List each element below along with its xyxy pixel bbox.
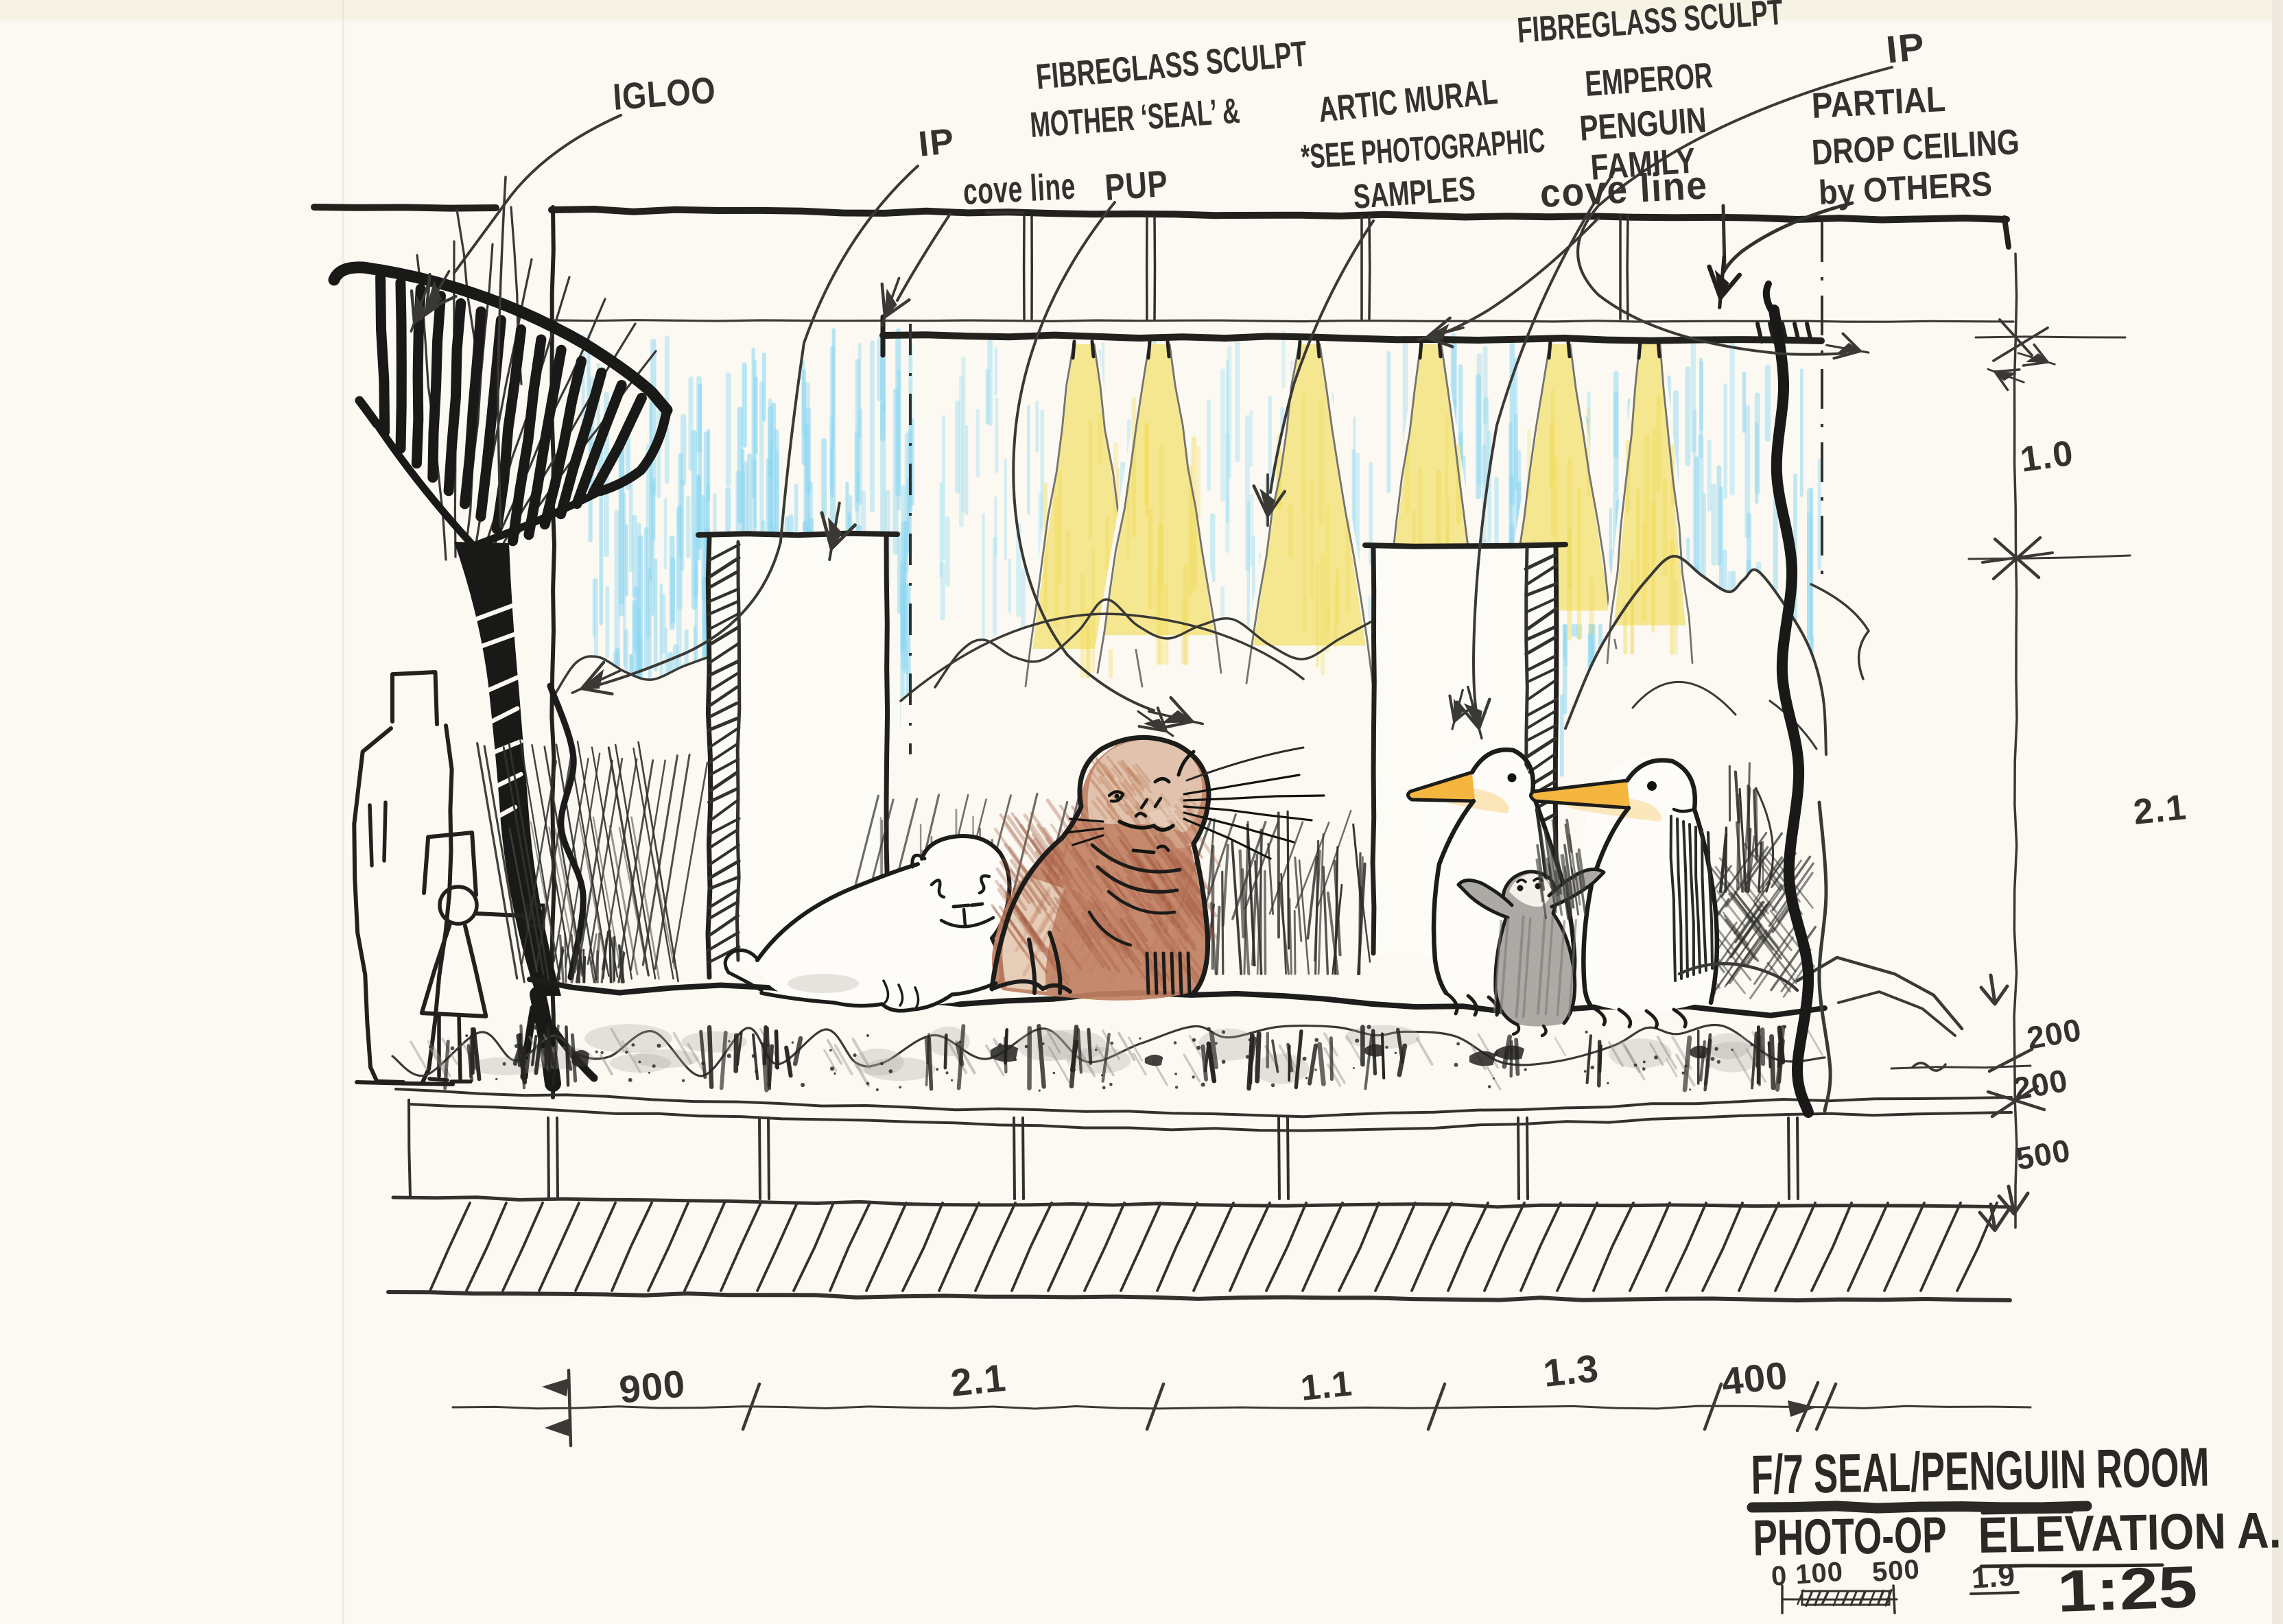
svg-text:2.1: 2.1 — [2131, 787, 2189, 833]
svg-text:400: 400 — [1720, 1353, 1790, 1403]
svg-text:500: 500 — [1871, 1554, 1921, 1588]
svg-text:1.0: 1.0 — [2018, 433, 2077, 480]
svg-text:PUP: PUP — [1104, 163, 1170, 208]
svg-text:PARTIAL: PARTIAL — [1811, 80, 1947, 126]
svg-text:IP: IP — [1884, 24, 1928, 71]
svg-text:IGLOO: IGLOO — [612, 70, 718, 118]
svg-text:cove line: cove line — [962, 165, 1076, 213]
svg-text:1:25: 1:25 — [2056, 1554, 2198, 1624]
svg-text:F/7 SEAL/PENGUIN ROOM: F/7 SEAL/PENGUIN ROOM — [1751, 1436, 2210, 1505]
svg-text:2.1: 2.1 — [949, 1356, 1008, 1405]
svg-text:IP: IP — [916, 121, 957, 165]
svg-text:1.9: 1.9 — [1970, 1559, 2016, 1595]
svg-text:1.1: 1.1 — [1299, 1363, 1354, 1409]
svg-text:1.3: 1.3 — [1541, 1346, 1601, 1395]
svg-text:900: 900 — [617, 1361, 687, 1411]
svg-text:cove line: cove line — [1539, 163, 1709, 216]
